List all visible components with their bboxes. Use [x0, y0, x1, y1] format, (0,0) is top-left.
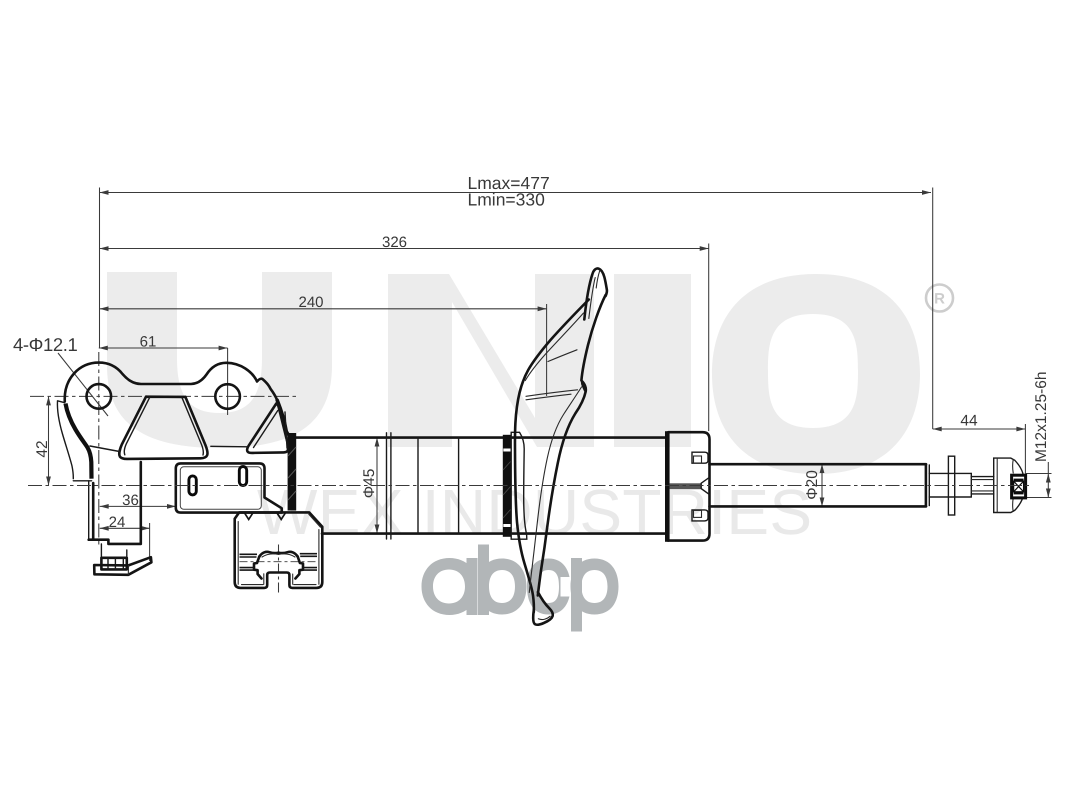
svg-text:326: 326 [382, 234, 407, 251]
svg-text:44: 44 [960, 413, 978, 430]
svg-text:4-Φ12.1: 4-Φ12.1 [13, 334, 78, 355]
svg-text:24: 24 [109, 514, 126, 531]
svg-text:WEX INDUSTRIES: WEX INDUSTRIES [257, 476, 812, 548]
svg-text:M12x1.25-6h: M12x1.25-6h [1033, 372, 1050, 462]
svg-text:36: 36 [122, 492, 139, 509]
svg-text:R: R [934, 291, 945, 308]
svg-text:42: 42 [34, 440, 51, 457]
svg-text:Lmin=330: Lmin=330 [468, 190, 546, 210]
svg-text:Φ45: Φ45 [361, 469, 378, 499]
svg-text:61: 61 [140, 333, 157, 350]
svg-text:Φ20: Φ20 [804, 470, 821, 500]
svg-text:240: 240 [298, 294, 323, 311]
